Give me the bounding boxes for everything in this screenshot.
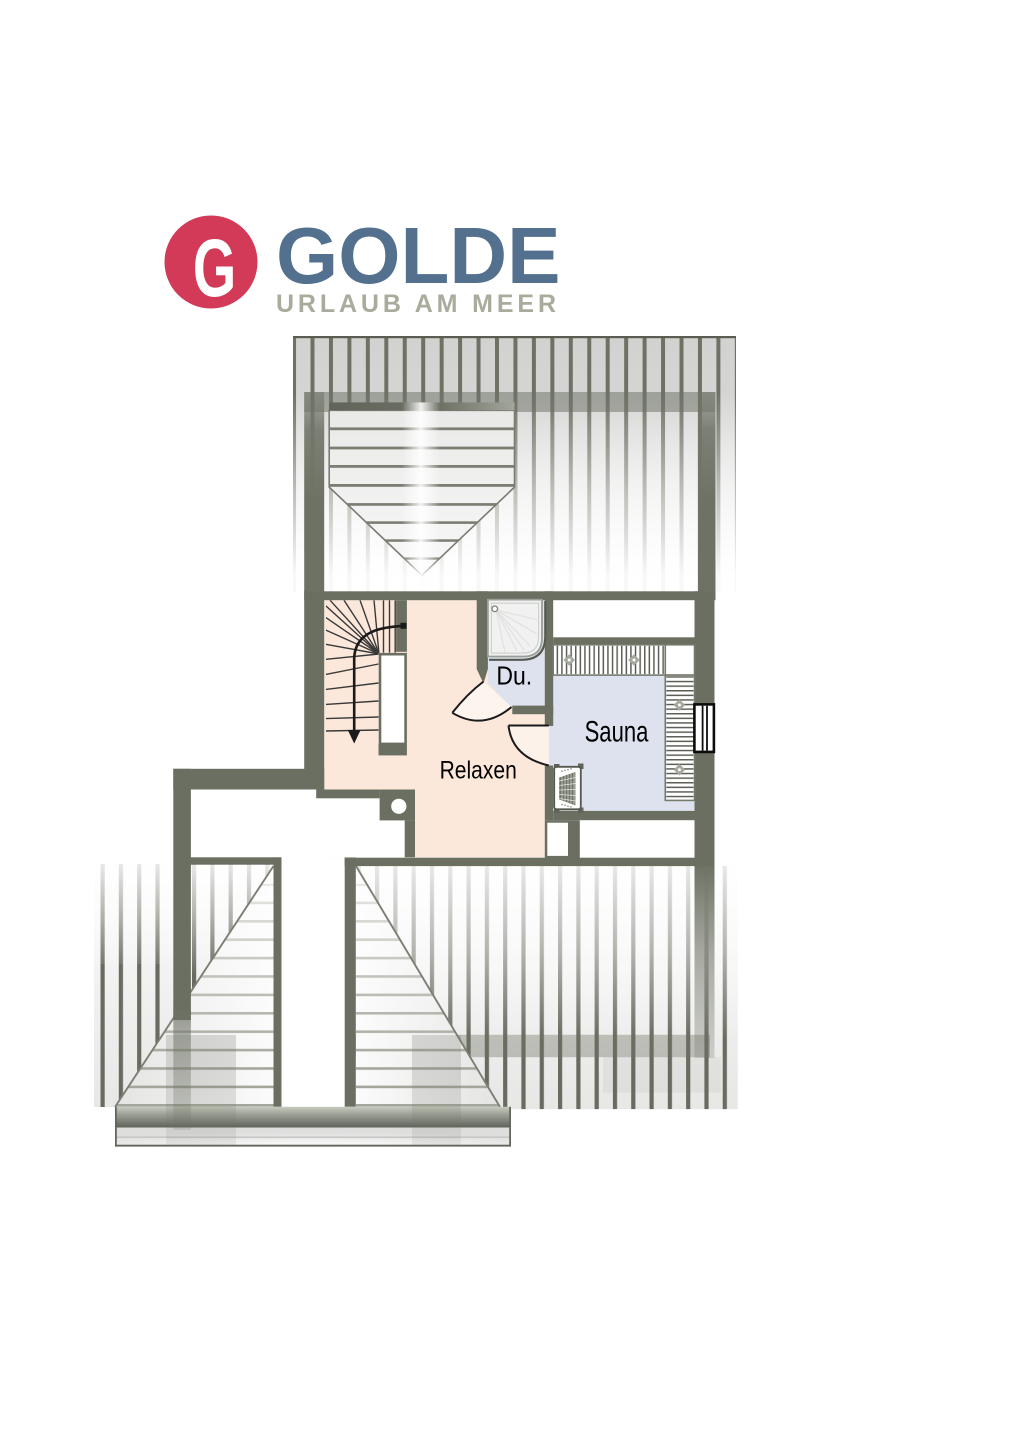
svg-text:Relaxen: Relaxen (440, 757, 517, 785)
svg-text:G: G (193, 222, 236, 313)
svg-text:Du.: Du. (496, 660, 532, 690)
svg-text:Sauna: Sauna (585, 715, 649, 748)
svg-text:GOLDE: GOLDE (276, 211, 560, 300)
